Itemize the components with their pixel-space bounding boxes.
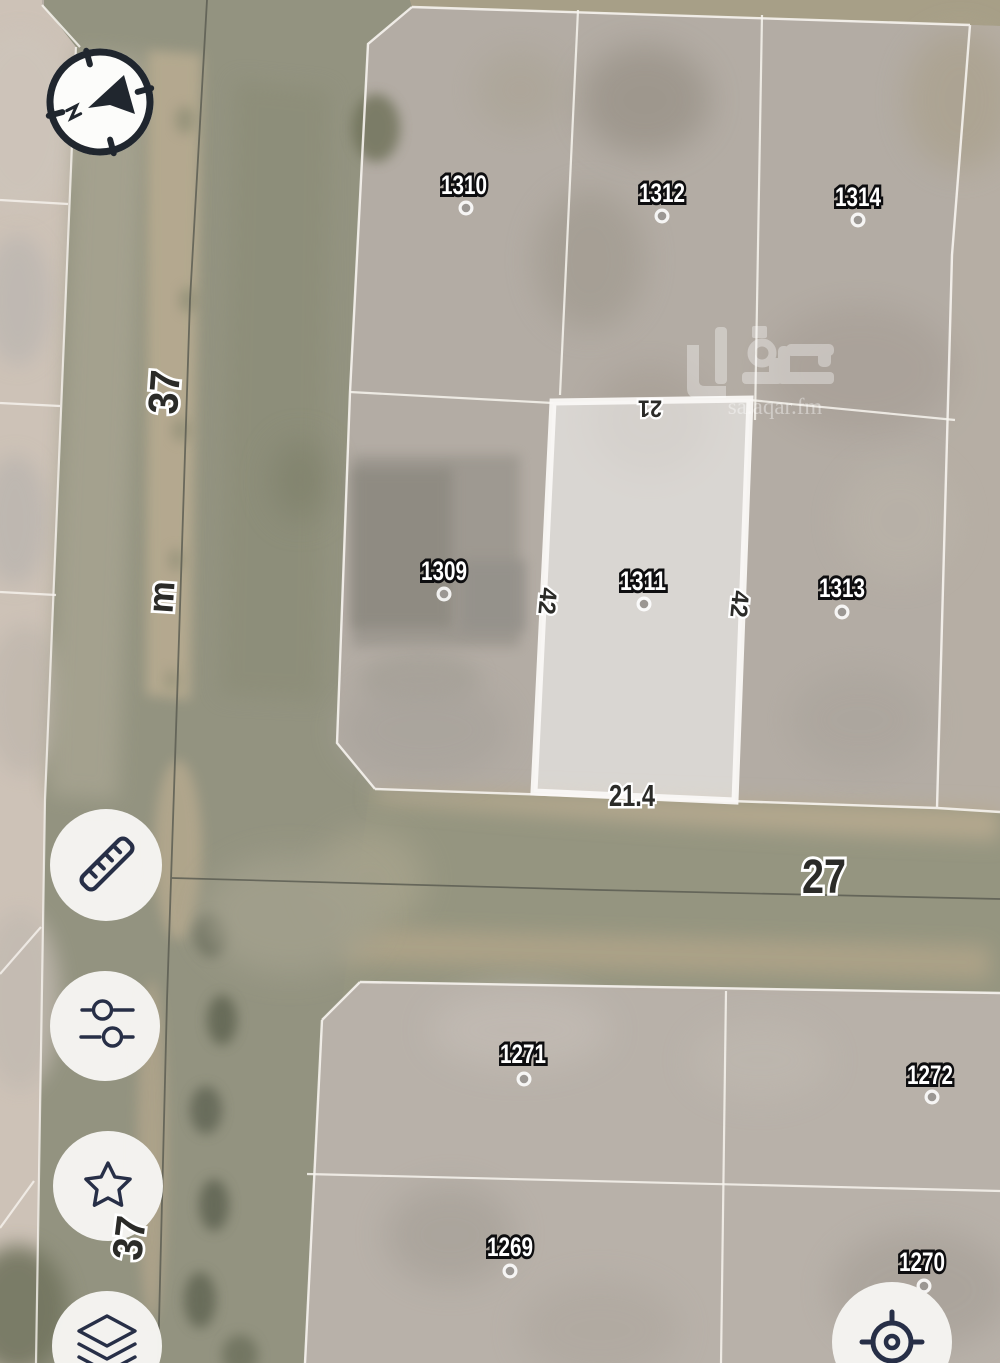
svg-text:1313: 1313 [819,573,865,603]
svg-text:1309: 1309 [421,556,467,586]
svg-text:m: m [139,580,182,615]
svg-text:1270: 1270 [899,1247,945,1277]
svg-text:1311: 1311 [620,566,666,596]
svg-text:21.4: 21.4 [609,778,656,813]
svg-text:21: 21 [638,395,662,422]
svg-text:1312: 1312 [639,178,685,208]
svg-text:sa.aqar.fm: sa.aqar.fm [728,394,823,419]
svg-text:1269: 1269 [487,1232,533,1262]
svg-text:42: 42 [532,586,561,615]
svg-text:27: 27 [802,851,846,904]
svg-text:37: 37 [139,368,189,415]
svg-text:1271: 1271 [500,1039,546,1069]
svg-text:1314: 1314 [835,182,881,212]
svg-text:1272: 1272 [907,1060,953,1090]
svg-text:37: 37 [103,1213,155,1262]
svg-text:1310: 1310 [441,170,487,200]
svg-text:42: 42 [724,589,753,618]
